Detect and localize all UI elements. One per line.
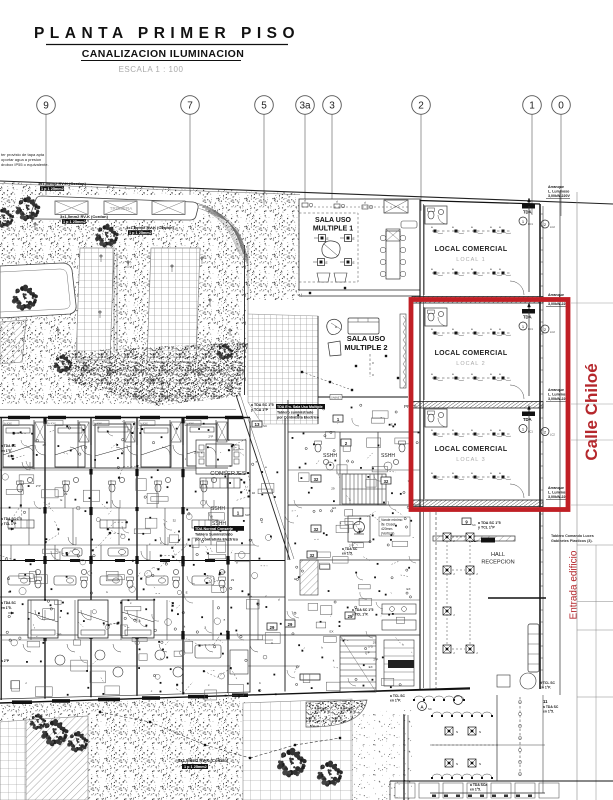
svg-text:SALA USO: SALA USO <box>315 217 351 224</box>
svg-text:N: N <box>479 730 481 734</box>
svg-text:11: 11 <box>543 699 548 704</box>
svg-text:por Contratista Electrico: por Contratista Electrico <box>195 538 239 542</box>
svg-text:a TDA SCa: a TDA SCa <box>470 783 487 787</box>
svg-text:en 1°5.: en 1°5. <box>342 552 353 556</box>
svg-text:E: E <box>182 681 184 685</box>
svg-text:a 2°P: a 2°P <box>1 659 10 663</box>
svg-text:A-XXX: A-XXX <box>48 422 56 426</box>
svg-text:3x1,5mm2 RV-K (Cordon): 3x1,5mm2 RV-K (Cordon) <box>60 214 109 219</box>
svg-text:E: E <box>327 237 329 241</box>
svg-text:TDA: TDA <box>523 315 532 320</box>
svg-text:2°P: 2°P <box>221 570 226 574</box>
svg-text:E: E <box>353 237 355 241</box>
svg-text:B: B <box>97 426 99 430</box>
svg-text:a TDA SC: a TDA SC <box>1 444 17 448</box>
svg-text:SSHH: SSHH <box>323 453 337 459</box>
svg-text:PLANTA PRIMER PISO: PLANTA PRIMER PISO <box>34 25 300 42</box>
svg-text:29: 29 <box>64 492 68 496</box>
svg-text:3x1,5mm2 RV-K (Cordon): 3x1,5mm2 RV-K (Cordon) <box>126 225 175 230</box>
svg-text:Arranque: Arranque <box>548 293 564 297</box>
svg-text:EX: EX <box>332 506 336 510</box>
svg-text:3: 3 <box>329 101 335 112</box>
svg-text:a TDA SC: a TDA SC <box>1 601 17 605</box>
svg-text:CONSERJES: CONSERJES <box>210 471 246 477</box>
svg-text:HALL: HALL <box>491 552 505 558</box>
svg-text:N: N <box>456 762 458 766</box>
svg-text:en 1°P.: en 1°P. <box>540 686 551 690</box>
svg-text:A-XXX: A-XXX <box>186 422 194 426</box>
svg-text:en 1°5.: en 1°5. <box>543 710 554 714</box>
svg-text:5: 5 <box>261 101 267 112</box>
svg-text:E: E <box>60 498 62 502</box>
svg-text:TROMERA: TROMERA <box>110 206 133 211</box>
svg-text:LC2: LC2 <box>550 225 555 229</box>
svg-text:en 1°5.: en 1°5. <box>1 449 12 453</box>
svg-text:32: 32 <box>310 553 315 558</box>
svg-text:3,00kW-220V: 3,00kW-220V <box>548 194 571 198</box>
svg-text:TDA: TDA <box>523 210 532 215</box>
svg-text:EX: EX <box>330 630 334 634</box>
svg-text:L. Luminoso: L. Luminoso <box>548 189 570 193</box>
svg-text:32: 32 <box>314 527 319 532</box>
svg-text:2: 2 <box>418 101 424 112</box>
svg-text:Arranque: Arranque <box>548 388 564 392</box>
svg-text:en 1°P.: en 1°P. <box>390 699 401 703</box>
svg-text:29: 29 <box>331 487 335 491</box>
svg-text:2°P: 2°P <box>57 632 62 636</box>
svg-text:29: 29 <box>231 578 235 582</box>
svg-text:3x1,5mm2 RV-K (Cordon): 3x1,5mm2 RV-K (Cordon) <box>38 181 87 186</box>
svg-text:E: E <box>294 577 296 581</box>
svg-text:2°P: 2°P <box>36 484 41 488</box>
svg-text:1 p 1 25mm2: 1 p 1 25mm2 <box>184 765 207 769</box>
svg-text:TDA Em. Sala Uso Multiple: TDA Em. Sala Uso Multiple <box>277 405 323 409</box>
svg-text:N: N <box>456 730 458 734</box>
svg-text:y TCA 1°P: y TCA 1°P <box>251 408 269 412</box>
svg-text:CANALIZACION ILUMINACION: CANALIZACION ILUMINACION <box>82 48 244 60</box>
svg-text:32: 32 <box>173 519 177 523</box>
svg-text:Arranque: Arranque <box>548 185 564 189</box>
svg-text:1: 1 <box>529 101 535 112</box>
svg-text:0: 0 <box>558 101 564 112</box>
svg-text:29: 29 <box>373 640 377 644</box>
svg-text:y TCL 1°P.: y TCL 1°P. <box>352 613 369 617</box>
svg-text:de Closet: de Closet <box>381 523 395 527</box>
svg-text:MULTIPLE 1: MULTIPLE 1 <box>313 226 353 233</box>
svg-text:3a: 3a <box>299 101 311 112</box>
svg-text:32: 32 <box>252 491 256 495</box>
svg-text:E: E <box>391 422 393 426</box>
svg-text:32: 32 <box>314 477 319 482</box>
svg-text:TDA Normal Conserje: TDA Normal Conserje <box>195 527 233 531</box>
svg-text:Entrada edificio: Entrada edificio <box>569 550 580 619</box>
svg-text:EX: EX <box>369 665 373 669</box>
svg-text:Calle Chiloé: Calle Chiloé <box>582 363 601 460</box>
svg-text:1 p 1 25mm2: 1 p 1 25mm2 <box>129 231 152 235</box>
svg-text:B: B <box>165 560 167 564</box>
svg-text:GABNET: GABNET <box>331 397 341 400</box>
svg-text:EX: EX <box>406 587 410 591</box>
svg-text:2°P: 2°P <box>194 450 199 454</box>
svg-text:LOCAL 1: LOCAL 1 <box>456 257 485 263</box>
svg-text:a TDA SC 1°5: a TDA SC 1°5 <box>352 608 374 612</box>
svg-text:SSHH: SSHH <box>211 506 225 512</box>
svg-text:ESCALA 1 : 100: ESCALA 1 : 100 <box>119 65 184 74</box>
svg-text:E: E <box>229 464 231 468</box>
svg-text:E: E <box>186 590 188 594</box>
svg-text:2°P: 2°P <box>365 650 370 654</box>
svg-text:A-XXX: A-XXX <box>140 422 148 426</box>
svg-text:SC: SC <box>428 707 432 711</box>
svg-text:y TCL 1°P: y TCL 1°P <box>1 522 17 526</box>
svg-text:a TDA SC: a TDA SC <box>543 705 559 709</box>
svg-text:LOCAL COMERCIAL: LOCAL COMERCIAL <box>435 246 508 253</box>
svg-text:a TDA SC 1°5: a TDA SC 1°5 <box>478 521 501 525</box>
svg-text:29: 29 <box>288 622 293 627</box>
svg-text:29: 29 <box>43 443 47 447</box>
svg-text:SW: SW <box>245 513 250 517</box>
svg-text:MULTIPLE 2: MULTIPLE 2 <box>344 343 387 352</box>
svg-text:a TDA SC: a TDA SC <box>342 547 358 551</box>
svg-text:(Vertical): (Vertical) <box>381 532 394 536</box>
svg-text:SSHH: SSHH <box>381 453 395 459</box>
svg-text:2°P: 2°P <box>208 435 213 439</box>
svg-text:a TCL SC: a TCL SC <box>390 694 406 698</box>
svg-text:29: 29 <box>270 625 275 630</box>
svg-text:en 1°5.: en 1°5. <box>470 788 481 792</box>
svg-text:1 p 1 25mm2: 1 p 1 25mm2 <box>41 187 64 191</box>
svg-text:9: 9 <box>43 101 49 112</box>
svg-text:420mm.: 420mm. <box>381 527 393 531</box>
svg-text:a TDA SC 1°5: a TDA SC 1°5 <box>1 517 22 521</box>
svg-text:LC2: LC2 <box>550 330 555 334</box>
svg-text:drobox IP55 o equivalente.: drobox IP55 o equivalente. <box>1 162 49 167</box>
svg-text:5x1,5mm2 RV-K (Cordon): 5x1,5mm2 RV-K (Cordon) <box>178 758 229 763</box>
svg-text:RECEPCION: RECEPCION <box>481 560 514 566</box>
svg-text:Gabinetes Plasticos (3).: Gabinetes Plasticos (3). <box>551 539 593 543</box>
svg-text:LC2: LC2 <box>550 433 555 437</box>
svg-text:Tablero Comando Luces: Tablero Comando Luces <box>551 534 594 538</box>
svg-text:Arranque: Arranque <box>548 486 564 490</box>
svg-text:1 p 1 25mm2: 1 p 1 25mm2 <box>63 220 86 224</box>
svg-text:LOCAL 3: LOCAL 3 <box>456 457 485 463</box>
svg-text:LOCAL 2: LOCAL 2 <box>456 361 485 367</box>
svg-text:TDA: TDA <box>523 417 532 422</box>
svg-text:7: 7 <box>187 101 193 112</box>
svg-text:LOCAL COMERCIAL: LOCAL COMERCIAL <box>435 446 508 453</box>
svg-text:Tablero suministrado: Tablero suministrado <box>277 411 314 415</box>
svg-text:Vande minimo: Vande minimo <box>381 518 403 522</box>
svg-text:32: 32 <box>108 531 112 535</box>
svg-text:1°5: 1°5 <box>368 645 373 649</box>
svg-text:E: E <box>326 261 328 265</box>
svg-text:B: B <box>211 515 213 519</box>
svg-text:32: 32 <box>384 479 389 484</box>
svg-text:A-XXX: A-XXX <box>4 422 12 426</box>
svg-text:y TCL 1°P: y TCL 1°P <box>478 526 495 530</box>
svg-text:a TDA SC 1°5: a TDA SC 1°5 <box>251 403 274 407</box>
svg-text:a TCL SC: a TCL SC <box>540 681 556 685</box>
svg-text:SC: SC <box>472 523 476 527</box>
svg-text:LOCAL COMERCIAL: LOCAL COMERCIAL <box>435 350 508 357</box>
svg-text:SALA USO: SALA USO <box>347 334 386 343</box>
svg-text:E: E <box>353 261 355 265</box>
svg-text:2°P: 2°P <box>136 620 141 624</box>
svg-text:N: N <box>479 762 481 766</box>
svg-text:en 1°5.: en 1°5. <box>1 606 12 610</box>
svg-text:13: 13 <box>254 422 260 427</box>
svg-text:Tablero Suministrado: Tablero Suministrado <box>195 533 233 537</box>
svg-text:2°P: 2°P <box>373 658 378 662</box>
